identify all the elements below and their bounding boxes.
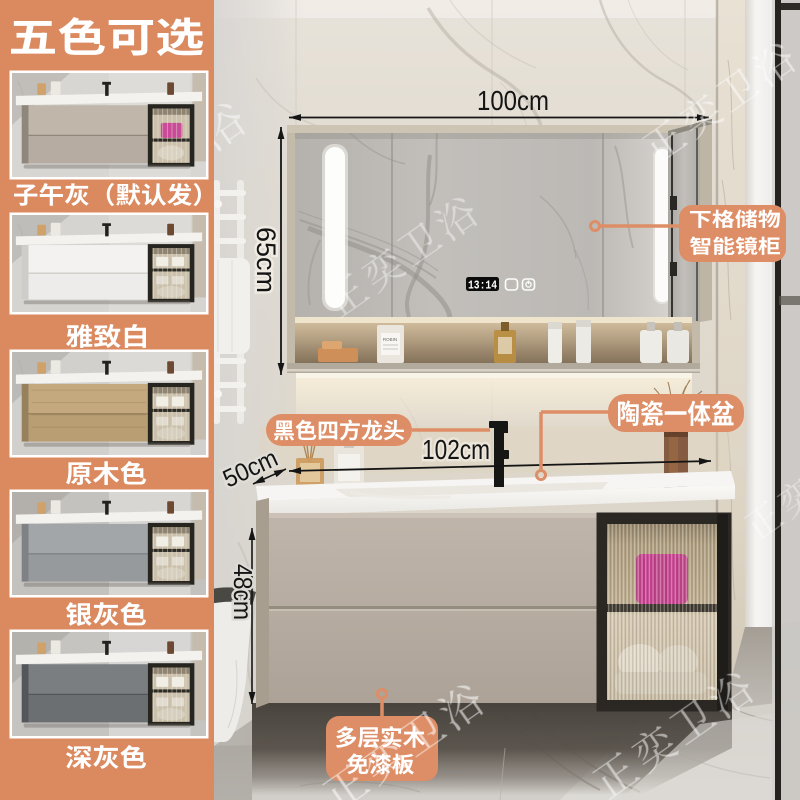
svg-text:65cm: 65cm (251, 227, 281, 293)
svg-text:ROBIN: ROBIN (383, 337, 397, 342)
svg-text:102cm: 102cm (422, 434, 490, 465)
svg-text:48cm: 48cm (228, 564, 258, 620)
svg-text:13:14: 13:14 (468, 280, 497, 293)
svg-text:100cm: 100cm (477, 85, 549, 116)
